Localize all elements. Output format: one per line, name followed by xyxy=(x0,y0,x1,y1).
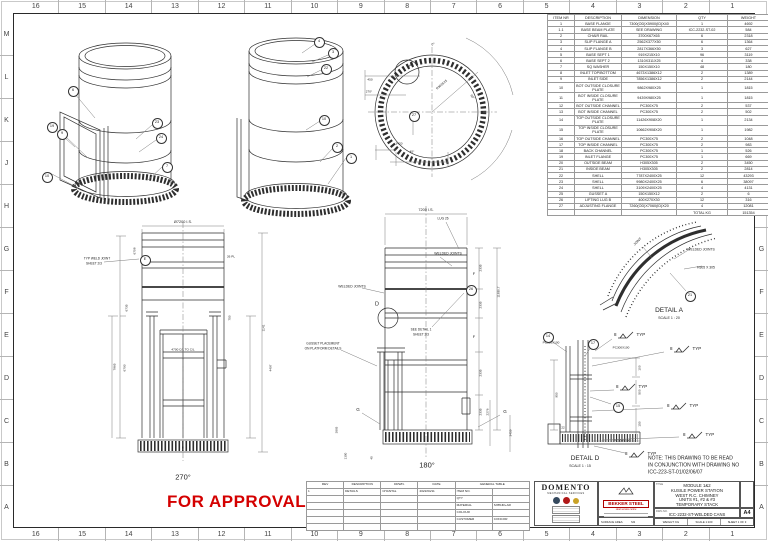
general-table-cell: QTY xyxy=(455,496,492,503)
rev-cell xyxy=(418,517,455,524)
grid-col-label: 12 xyxy=(199,528,245,541)
rev-row: CUSTOMERCONCOR xyxy=(307,517,530,524)
rev-cell xyxy=(344,517,381,524)
grid-row-label: K xyxy=(0,99,13,142)
bom-cell xyxy=(575,210,622,216)
rev-column-header: DRWN. xyxy=(381,482,418,489)
grid-col-label: 4 xyxy=(570,0,616,13)
bom-row: 15TOP INSIDE CLOSURE PLATE10662X908X2011… xyxy=(548,125,768,135)
rev-cell xyxy=(381,524,418,531)
cert-logo-icon xyxy=(573,498,579,504)
drawing-sheet: 16151413121110987654321 1615141312111098… xyxy=(0,0,768,541)
rev-cell xyxy=(418,524,455,531)
general-table-cell: MATERIAL xyxy=(455,503,492,510)
bom-cell: 1815 xyxy=(728,83,768,93)
bom-cell: 15 xyxy=(548,125,575,135)
rev-row: MATERIALS355JR+AR xyxy=(307,503,530,510)
fabricator-name: BEKKER STEEL xyxy=(603,500,649,508)
general-table-cell: CUSTOMER xyxy=(455,517,492,524)
grid-band-left: MLKJHGFEDCBA xyxy=(0,13,13,528)
grid-row-label: B xyxy=(755,443,768,486)
bom-row: 11BOT INSIDE CLOSURE PLATE9439X980X25118… xyxy=(548,93,768,103)
general-table-header: GENERAL TABLE xyxy=(455,482,529,489)
general-table-cell xyxy=(492,510,529,517)
bom-cell: 1982 xyxy=(728,125,768,135)
grid-row-label: D xyxy=(755,357,768,400)
grid-row-label: C xyxy=(0,400,13,443)
bom-cell: 10662X908X20 xyxy=(622,125,677,135)
grid-row-label: F xyxy=(755,271,768,314)
rev-cell: 1 xyxy=(307,489,344,496)
grid-row-label: J xyxy=(0,142,13,185)
grid-col-label: 1 xyxy=(710,0,755,13)
grid-col-label: 15 xyxy=(59,0,105,13)
bom-cell: 11 xyxy=(548,93,575,103)
rev-cell xyxy=(344,503,381,510)
weight-label: WEIGHT: KG xyxy=(655,519,688,525)
grid-col-label: 1 xyxy=(710,528,755,541)
scale-label: SCALE 1:100 xyxy=(688,519,721,525)
grid-row-label: A xyxy=(755,486,768,528)
grid-col-label: 15 xyxy=(59,528,105,541)
bom-row: 14TOP OUTSIDE CLOSURE PLATE11426X908X201… xyxy=(548,115,768,125)
grid-row-label: E xyxy=(0,314,13,357)
fabricator-logo-icon xyxy=(618,487,634,495)
drawing-number-block: DWG NO. ICC-2232-ST-WELDED CANS xyxy=(654,508,740,518)
bom-cell: BOT OUTSIDE CLOSURE PLATE xyxy=(575,83,622,93)
drawing-title-block: TITLE MODULE 1&2KUSILE POWER STATIONWEST… xyxy=(654,481,740,508)
general-table-cell xyxy=(492,496,529,503)
grid-col-label: 16 xyxy=(13,528,59,541)
drawing-title: MODULE 1&2KUSILE POWER STATIONWEST R.C. … xyxy=(655,482,739,508)
grid-row-label: H xyxy=(0,185,13,228)
bom-cell xyxy=(622,210,677,216)
surface-area-label: SURFACE AREA: xyxy=(601,520,623,524)
rev-cell xyxy=(381,496,418,503)
rev-cell xyxy=(344,510,381,517)
bom-body: 1BASE FLANGE7300(OD)X5900(ID)X40146921.1… xyxy=(548,21,768,216)
bom-cell: 1 xyxy=(677,83,728,93)
company-name: DOMENTO xyxy=(535,483,597,492)
rev-row: COLOUR xyxy=(307,510,530,517)
grid-row-label: C xyxy=(755,400,768,443)
grid-row-label: A xyxy=(0,486,13,528)
grid-row-label: L xyxy=(0,56,13,99)
bom-cell: 2134 xyxy=(728,115,768,125)
rev-cell xyxy=(307,524,344,531)
title-label: TITLE xyxy=(656,483,663,486)
general-table-cell: CONCOR xyxy=(492,517,529,524)
rev-cell xyxy=(381,510,418,517)
rev-cell xyxy=(344,524,381,531)
title-side-box xyxy=(740,481,754,508)
rev-row: 1DETAILSCHANTAL2022/04/11ITEM NO. xyxy=(307,489,530,496)
company-block: DOMENTO MECHANICAL SERVICES xyxy=(534,481,598,526)
revision-table: REVDESCRIPTIONDRWN.DATEGENERAL TABLE1DET… xyxy=(306,481,530,531)
grid-col-label: 13 xyxy=(152,0,198,13)
fabricator-subtitle: steel service centre xyxy=(599,508,653,511)
grid-col-label: 14 xyxy=(106,0,152,13)
bom-cell: TOP OUTSIDE CLOSURE PLATE xyxy=(575,115,622,125)
rev-cell xyxy=(307,510,344,517)
grid-col-label: 16 xyxy=(13,0,59,13)
grid-col-label: 8 xyxy=(385,0,431,13)
surface-area-strip: SURFACE AREA: M2 xyxy=(598,517,654,526)
bom-cell: 1 xyxy=(677,125,728,135)
sheet-label: SHEET 1 OF 3 xyxy=(721,519,753,525)
bom-cell: BOT INSIDE CLOSURE PLATE xyxy=(575,93,622,103)
bom-cell: 1815 xyxy=(728,93,768,103)
general-table-cell xyxy=(455,524,492,531)
grid-col-label: 5 xyxy=(524,0,570,13)
rev-row: QTY xyxy=(307,496,530,503)
bom-cell: 14 xyxy=(548,115,575,125)
grid-row-label: M xyxy=(0,13,13,56)
bom-cell: 1 xyxy=(677,115,728,125)
grid-col-label: 14 xyxy=(106,528,152,541)
company-stamp-box xyxy=(552,515,580,523)
approval-stamp: FOR APPROVAL xyxy=(167,492,306,512)
rev-cell xyxy=(418,503,455,510)
grid-col-label: 5 xyxy=(524,528,570,541)
rev-column-header: DATE xyxy=(418,482,455,489)
grid-col-label: 2 xyxy=(663,0,709,13)
fabricator-block: BEKKER STEEL steel service centre xyxy=(598,481,654,517)
general-table-cell: ITEM NO. xyxy=(455,489,492,496)
general-table-cell: COLOUR xyxy=(455,510,492,517)
general-table-cell xyxy=(492,489,529,496)
grid-col-label: 7 xyxy=(431,0,477,13)
grid-col-label: 4 xyxy=(570,528,616,541)
rev-cell xyxy=(418,496,455,503)
grid-band-top: 16151413121110987654321 xyxy=(13,0,755,13)
grid-col-label: 11 xyxy=(245,0,291,13)
rev-column-header: REV xyxy=(307,482,344,489)
company-stamp-box xyxy=(552,506,580,514)
bom-row: 10BOT OUTSIDE CLOSURE PLATE9862X980X2511… xyxy=(548,83,768,93)
rev-cell xyxy=(418,510,455,517)
rev-cell xyxy=(307,503,344,510)
grid-col-label: 6 xyxy=(477,0,523,13)
cert-logo-icon xyxy=(553,497,560,504)
bom-cell: 9862X980X25 xyxy=(622,83,677,93)
bom-cell: TOP INSIDE CLOSURE PLATE xyxy=(575,125,622,135)
grid-col-label: 3 xyxy=(617,0,663,13)
bom-cell xyxy=(548,210,575,216)
rev-row xyxy=(307,524,530,531)
surface-area-unit: M2 xyxy=(631,520,635,524)
certification-logos xyxy=(535,497,597,504)
paper-size-box: A4 xyxy=(740,508,754,518)
grid-row-label: G xyxy=(755,228,768,271)
bill-of-materials-table: ITEM NRDESCRIPTIONDIMENSIONQTYWEIGHT 1BA… xyxy=(547,14,768,216)
general-table-cell: S355JR+AR xyxy=(492,503,529,510)
rev-cell xyxy=(307,496,344,503)
company-subtitle: MECHANICAL SERVICES xyxy=(535,492,597,495)
grid-row-label: E xyxy=(755,314,768,357)
rev-cell xyxy=(344,496,381,503)
dwg-no-label: DWG NO. xyxy=(656,510,668,513)
grid-row-label: D xyxy=(0,357,13,400)
cert-logo-icon xyxy=(563,497,570,504)
grid-row-label: B xyxy=(0,443,13,486)
grid-col-label: 11 xyxy=(245,528,291,541)
grid-row-label: F xyxy=(0,271,13,314)
revision-table-body: REVDESCRIPTIONDRWN.DATEGENERAL TABLE1DET… xyxy=(307,482,530,531)
grid-col-label: 12 xyxy=(199,0,245,13)
grid-col-label: 10 xyxy=(292,0,338,13)
rev-cell: DETAILS xyxy=(344,489,381,496)
bom-cell: 10 xyxy=(548,83,575,93)
grid-col-label: 9 xyxy=(338,0,384,13)
bom-total-value: 151354 xyxy=(728,210,768,216)
grid-col-label: 13 xyxy=(152,528,198,541)
bom-total-row: TOTAL KG151354 xyxy=(548,210,768,216)
rev-cell: 2022/04/11 xyxy=(418,489,455,496)
general-table-cell xyxy=(492,524,529,531)
rev-column-header: DESCRIPTION xyxy=(344,482,381,489)
bom-cell: 11426X908X20 xyxy=(622,115,677,125)
rev-cell: CHANTAL xyxy=(381,489,418,496)
title-footer-strip: WEIGHT: KG SCALE 1:100 SHEET 1 OF 3 xyxy=(654,518,754,526)
bom-cell: 1 xyxy=(677,93,728,103)
grid-col-label: 3 xyxy=(617,528,663,541)
grid-col-label: 2 xyxy=(663,528,709,541)
rev-cell xyxy=(307,517,344,524)
grid-row-label: G xyxy=(0,228,13,271)
rev-cell xyxy=(381,503,418,510)
rev-cell xyxy=(381,517,418,524)
bom-total-label: TOTAL KG xyxy=(677,210,728,216)
bom-cell: 9439X980X25 xyxy=(622,93,677,103)
